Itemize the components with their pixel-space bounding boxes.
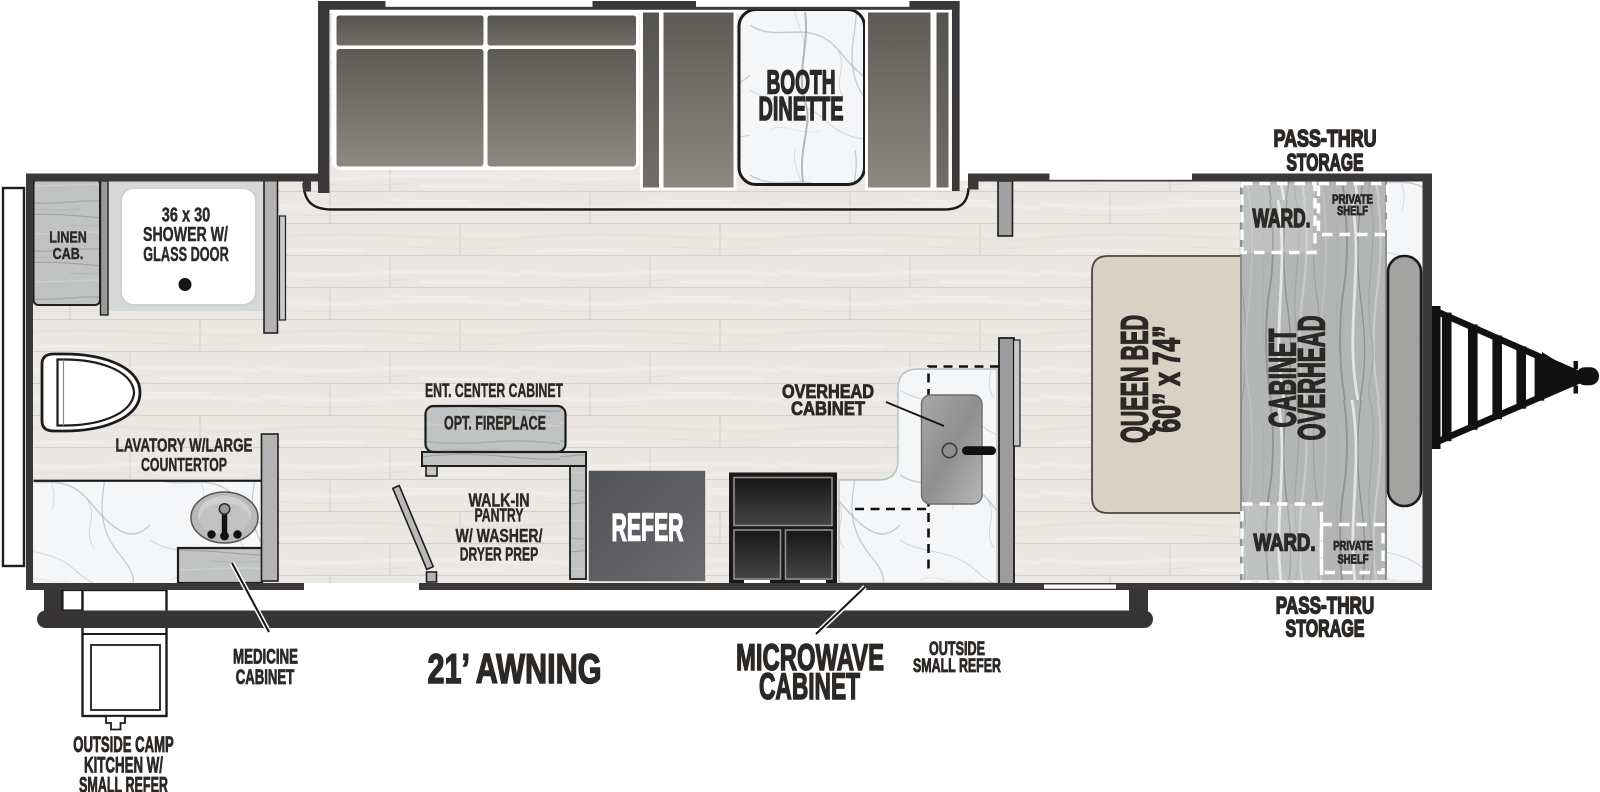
svg-text:CABINET: CABINET (1263, 329, 1305, 428)
svg-text:QUEEN BED: QUEEN BED (1115, 315, 1157, 443)
svg-text:CABINET: CABINET (759, 666, 860, 707)
svg-text:CABINET: CABINET (236, 666, 295, 689)
svg-text:W/ WASHER/: W/ WASHER/ (456, 526, 543, 546)
svg-text:DINETTE: DINETTE (759, 90, 844, 127)
svg-text:21’ AWNING: 21’ AWNING (428, 645, 602, 692)
svg-text:GLASS DOOR: GLASS DOOR (143, 244, 229, 266)
svg-text:STORAGE: STORAGE (1287, 150, 1364, 177)
svg-text:ENT. CENTER CABINET: ENT. CENTER CABINET (425, 381, 563, 402)
svg-text:DRYER PREP: DRYER PREP (460, 545, 539, 565)
svg-text:SHELF: SHELF (1338, 552, 1369, 567)
svg-text:SHOWER W/: SHOWER W/ (143, 224, 228, 246)
svg-text:WARD.: WARD. (1253, 203, 1311, 233)
svg-text:STORAGE: STORAGE (1286, 616, 1365, 643)
svg-text:SMALL REFER: SMALL REFER (913, 655, 1001, 677)
svg-text:CABINET: CABINET (791, 399, 865, 420)
svg-text:CAB.: CAB. (53, 246, 84, 263)
svg-text:SHELF: SHELF (1337, 204, 1368, 218)
svg-text:OPT. FIREPLACE: OPT. FIREPLACE (444, 414, 546, 435)
svg-text:LINEN: LINEN (49, 230, 87, 247)
svg-text:PASS-THRU: PASS-THRU (1274, 126, 1377, 153)
svg-text:LAVATORY W/LARGE: LAVATORY W/LARGE (116, 436, 253, 456)
svg-text:PANTRY: PANTRY (475, 506, 524, 526)
svg-text:SMALL REFER: SMALL REFER (79, 773, 168, 792)
svg-text:REFER: REFER (612, 507, 684, 550)
svg-text:WARD.: WARD. (1254, 530, 1316, 557)
svg-text:COUNTERTOP: COUNTERTOP (141, 455, 227, 475)
